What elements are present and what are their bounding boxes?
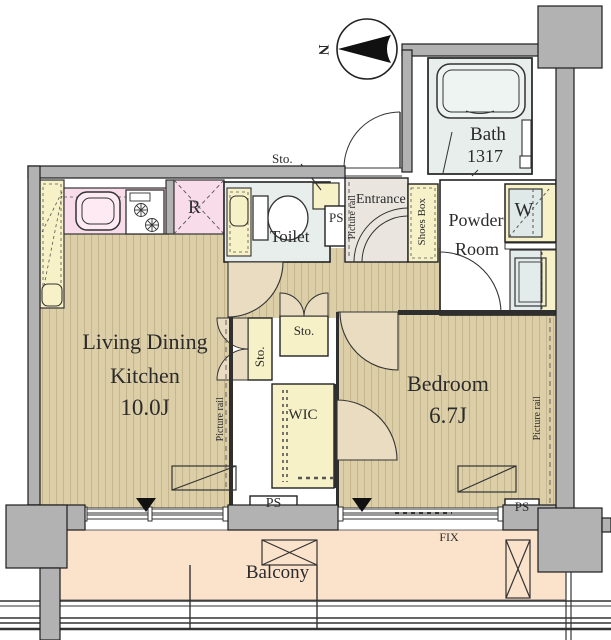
bath-label: Bath [452, 125, 524, 145]
toilet-storage-box [313, 183, 339, 209]
refrigerator-label: R [188, 198, 201, 218]
picture-rail-label-ldk: Picture rail [216, 379, 227, 459]
shoes-box-label: Shoes Box [417, 182, 429, 262]
bedroom-size-label: 6.7J [383, 404, 513, 428]
stove [126, 190, 164, 234]
picture-rail-label-entrance: Picture rail [348, 177, 359, 257]
wall-stub [166, 180, 174, 234]
ldk-window [82, 507, 228, 528]
walk-in-closet [272, 384, 334, 488]
compass-north-label: N [314, 36, 330, 64]
bath-top-wall [402, 44, 558, 56]
corridor-wall [402, 50, 412, 172]
entrance-label: Entrance [356, 193, 406, 208]
storage-label-ldk: Sto. [253, 317, 267, 397]
floor-plan: N Bath 1317 Powder Room W Entrance Shoes… [0, 0, 611, 640]
fix-window-label: FIX [427, 531, 471, 544]
toilet-label: Toilet [270, 228, 309, 246]
top-wall [28, 166, 345, 178]
balcony-label: Balcony [225, 563, 330, 583]
pipe-space-label-bottom: PS [250, 497, 297, 512]
pillar-top-right [538, 6, 602, 68]
compass [337, 19, 397, 79]
pillar-bottom-right [538, 508, 602, 572]
wall-stub-right [602, 518, 611, 532]
powder-room-label-line1: Powder [440, 211, 512, 230]
left-wall [28, 166, 40, 505]
pillar-bottom-left [6, 505, 67, 568]
right-wall [556, 62, 574, 510]
bedroom-label: Bedroom [383, 372, 513, 395]
bathtub [437, 64, 525, 118]
pipe-space-label-toilet: PS [329, 209, 342, 226]
storage-label-toilet: Sto. [272, 152, 293, 166]
wic-label: WIC [278, 408, 328, 424]
ldk-size-label: 10.0J [55, 396, 235, 420]
ldk-label-line1: Living Dining [55, 330, 235, 353]
picture-rail-label-bedroom: Picture rail [533, 378, 544, 458]
bath-size-label: 1317 [452, 147, 518, 166]
front-door-arc [344, 112, 400, 168]
ldk-label-line2: Kitchen [55, 364, 235, 387]
plan-graphics [0, 0, 611, 640]
column-bottom-left [40, 568, 60, 640]
vanity [510, 250, 556, 314]
kitchen-end-counter [42, 284, 62, 306]
powder-room-label-line2: Room [441, 240, 513, 259]
pipe-space-label-right: PS [505, 500, 539, 514]
toilet-room [224, 164, 345, 262]
washing-machine-label: W [512, 200, 536, 221]
storage-label-hall: Sto. [284, 324, 324, 338]
